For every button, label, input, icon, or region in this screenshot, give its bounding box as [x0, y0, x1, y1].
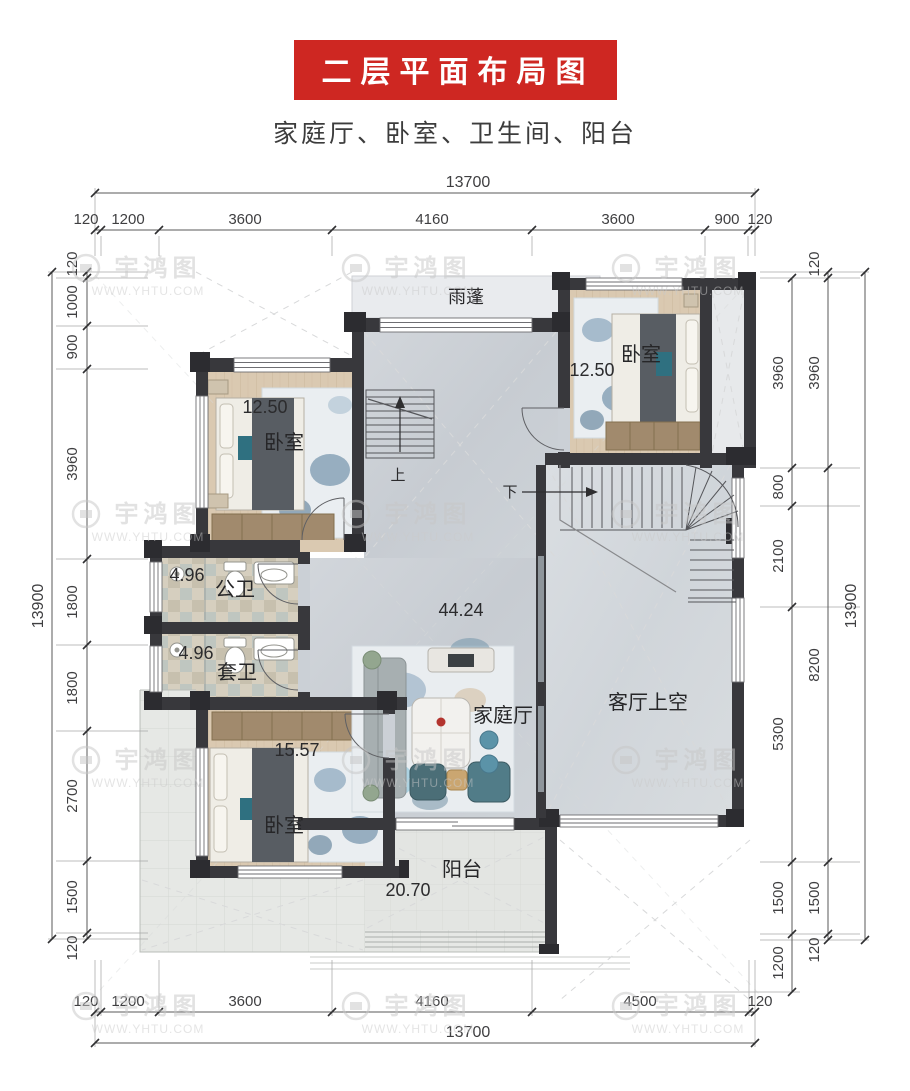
- stair-down-label: 下: [502, 484, 517, 501]
- watermark-logo-icon: [80, 1002, 92, 1010]
- watermark-url: WWW.YHTU.COM: [362, 530, 475, 544]
- bedroom-bottom-label: 卧室: [264, 814, 304, 837]
- wardrobe: [606, 422, 700, 450]
- dim-left-7: 1500: [64, 880, 81, 913]
- watermark: 宇鸿图WWW.YHTU.COM: [343, 992, 474, 1036]
- watermark-brand: 宇鸿图: [385, 992, 472, 1020]
- dimension-text-top: 13700 120 1200 3600 4160 3600 900 120: [73, 174, 772, 228]
- watermark-brand: 宇鸿图: [115, 992, 202, 1020]
- watermark-url: WWW.YHTU.COM: [632, 530, 745, 544]
- watermark-logo-icon: [80, 264, 92, 272]
- dim-top-6: 120: [747, 211, 772, 228]
- dim-bot-2: 3600: [228, 993, 261, 1010]
- header: 二层平面布局图 家庭厅、卧室、卫生间、阳台: [0, 40, 910, 150]
- floor-plan-drawing: 雨蓬 12.50 卧室 12.50 卧室 4.96 公卫 4.96 套卫 44.…: [0, 0, 910, 1091]
- dim-right-in-5: 1200: [770, 946, 787, 979]
- dim-right-in-2: 2100: [770, 539, 787, 572]
- dim-right-out-4: 120: [806, 937, 823, 962]
- watermark-brand: 宇鸿图: [115, 746, 202, 774]
- dim-top-0: 120: [73, 211, 98, 228]
- dim-top-5: 900: [714, 211, 739, 228]
- dim-left-8: 120: [64, 935, 81, 960]
- watermark-url: WWW.YHTU.COM: [92, 776, 205, 790]
- watermark-brand: 宇鸿图: [115, 500, 202, 528]
- dim-left-2: 900: [64, 334, 81, 359]
- bedroom-bottom-area: 15.57: [274, 740, 319, 760]
- bedroom-top-right-label: 卧室: [621, 343, 661, 366]
- balcony-area: 20.70: [385, 880, 430, 900]
- watermark-logo-icon: [620, 756, 632, 764]
- watermark-brand: 宇鸿图: [385, 500, 472, 528]
- window: [560, 815, 718, 827]
- watermark-brand: 宇鸿图: [115, 254, 202, 282]
- watermark-logo-icon: [350, 264, 362, 272]
- watermark-logo-icon: [350, 1002, 362, 1010]
- window: [238, 866, 342, 878]
- bath-ensuite-area: 4.96: [178, 643, 213, 663]
- watermark-url: WWW.YHTU.COM: [632, 284, 745, 298]
- watermark-url: WWW.YHTU.COM: [92, 1022, 205, 1036]
- dim-left-4: 1800: [64, 585, 81, 618]
- watermark: 宇鸿图WWW.YHTU.COM: [73, 500, 204, 544]
- watermark-logo-icon: [350, 510, 362, 518]
- watermark-brand: 宇鸿图: [655, 254, 742, 282]
- watermark-logo-icon: [620, 1002, 632, 1010]
- nightstand: [208, 494, 228, 508]
- pouf: [480, 731, 498, 749]
- dim-bot-5: 120: [747, 993, 772, 1010]
- dim-left-3: 3960: [64, 447, 81, 480]
- dim-top-2: 3600: [228, 211, 261, 228]
- toilet-tank: [224, 638, 246, 647]
- side-platform: [712, 290, 744, 453]
- watermark-logo-icon: [350, 756, 362, 764]
- bedroom-top-right-area: 12.50: [569, 360, 614, 380]
- bath-public-label: 公卫: [215, 579, 255, 601]
- window: [196, 396, 208, 508]
- bath-public-area: 4.96: [169, 565, 204, 585]
- floor-plan-page: 二层平面布局图 家庭厅、卧室、卫生间、阳台: [0, 0, 910, 1091]
- dim-top-4: 3600: [601, 211, 634, 228]
- window: [380, 318, 532, 332]
- dim-right-in-1: 800: [770, 474, 787, 499]
- tv: [448, 654, 474, 667]
- dim-right-total: 13900: [843, 584, 860, 629]
- family-hall-area: 44.24: [438, 600, 483, 620]
- dim-left-6: 2700: [64, 779, 81, 812]
- void-railing: [536, 465, 546, 818]
- watermark-brand: 宇鸿图: [655, 746, 742, 774]
- watermark-logo-icon: [80, 756, 92, 764]
- dim-right-in-3: 5300: [770, 717, 787, 750]
- watermark-url: WWW.YHTU.COM: [362, 284, 475, 298]
- dim-left-1: 1000: [64, 285, 81, 318]
- watermark-logo-icon: [620, 264, 632, 272]
- family-hall-label: 家庭厅: [473, 704, 533, 727]
- plant: [363, 651, 381, 669]
- toilet-tank: [224, 562, 246, 571]
- dim-top-3: 4160: [415, 211, 448, 228]
- watermark-brand: 宇鸿图: [655, 992, 742, 1020]
- page-subtitle: 家庭厅、卧室、卫生间、阳台: [0, 114, 910, 150]
- watermark: 宇鸿图WWW.YHTU.COM: [73, 746, 204, 790]
- outdoor-steps: [310, 957, 630, 969]
- dim-right-in-0: 3960: [770, 356, 787, 389]
- bedroom-top-left-area: 12.50: [242, 397, 287, 417]
- dim-right-in-4: 1500: [770, 881, 787, 914]
- watermark-url: WWW.YHTU.COM: [632, 776, 745, 790]
- page-title: 二层平面布局图: [294, 40, 617, 100]
- watermark: 宇鸿图WWW.YHTU.COM: [73, 254, 204, 298]
- window: [234, 358, 330, 372]
- watermark-url: WWW.YHTU.COM: [632, 1022, 745, 1036]
- bath-ensuite-label: 套卫: [217, 661, 257, 684]
- stair-up-label: 上: [390, 467, 405, 484]
- dim-right-out-2: 8200: [806, 648, 823, 681]
- dim-right-out-3: 1500: [806, 881, 823, 914]
- balcony-label: 阳台: [442, 858, 482, 881]
- dim-right-out-1: 3960: [806, 356, 823, 389]
- wardrobe: [212, 712, 362, 740]
- window: [150, 646, 162, 692]
- sliding-door: [396, 818, 514, 830]
- watermark-brand: 宇鸿图: [385, 746, 472, 774]
- watermark-url: WWW.YHTU.COM: [362, 1022, 475, 1036]
- window: [150, 562, 162, 612]
- watermark-logo-icon: [620, 510, 632, 518]
- dimension-text-left: 13900 120 1000 900 3960 1800 1800 2700 1…: [30, 251, 81, 960]
- bedroom-top-left-label: 卧室: [264, 431, 304, 454]
- watermark-url: WWW.YHTU.COM: [362, 776, 475, 790]
- watermark-url: WWW.YHTU.COM: [92, 284, 205, 298]
- watermark-logo-icon: [80, 510, 92, 518]
- dim-right-out-0: 120: [806, 251, 823, 276]
- bed: [612, 314, 700, 424]
- dimension-text-right: 3960 800 2100 5300 1500 1200 120 3960 82…: [770, 251, 860, 979]
- dim-left-5: 1800: [64, 671, 81, 704]
- watermark-url: WWW.YHTU.COM: [92, 530, 205, 544]
- pouf: [480, 755, 498, 773]
- watermark-brand: 宇鸿图: [655, 500, 742, 528]
- watermark: 宇鸿图WWW.YHTU.COM: [613, 254, 744, 298]
- watermark-brand: 宇鸿图: [385, 254, 472, 282]
- dim-top-1: 1200: [111, 211, 144, 228]
- living-void-label: 客厅上空: [608, 691, 688, 714]
- dim-left-total: 13900: [30, 584, 47, 629]
- window: [732, 598, 744, 682]
- nightstand: [208, 380, 228, 394]
- bed: [210, 748, 308, 862]
- dim-top-total: 13700: [446, 174, 491, 191]
